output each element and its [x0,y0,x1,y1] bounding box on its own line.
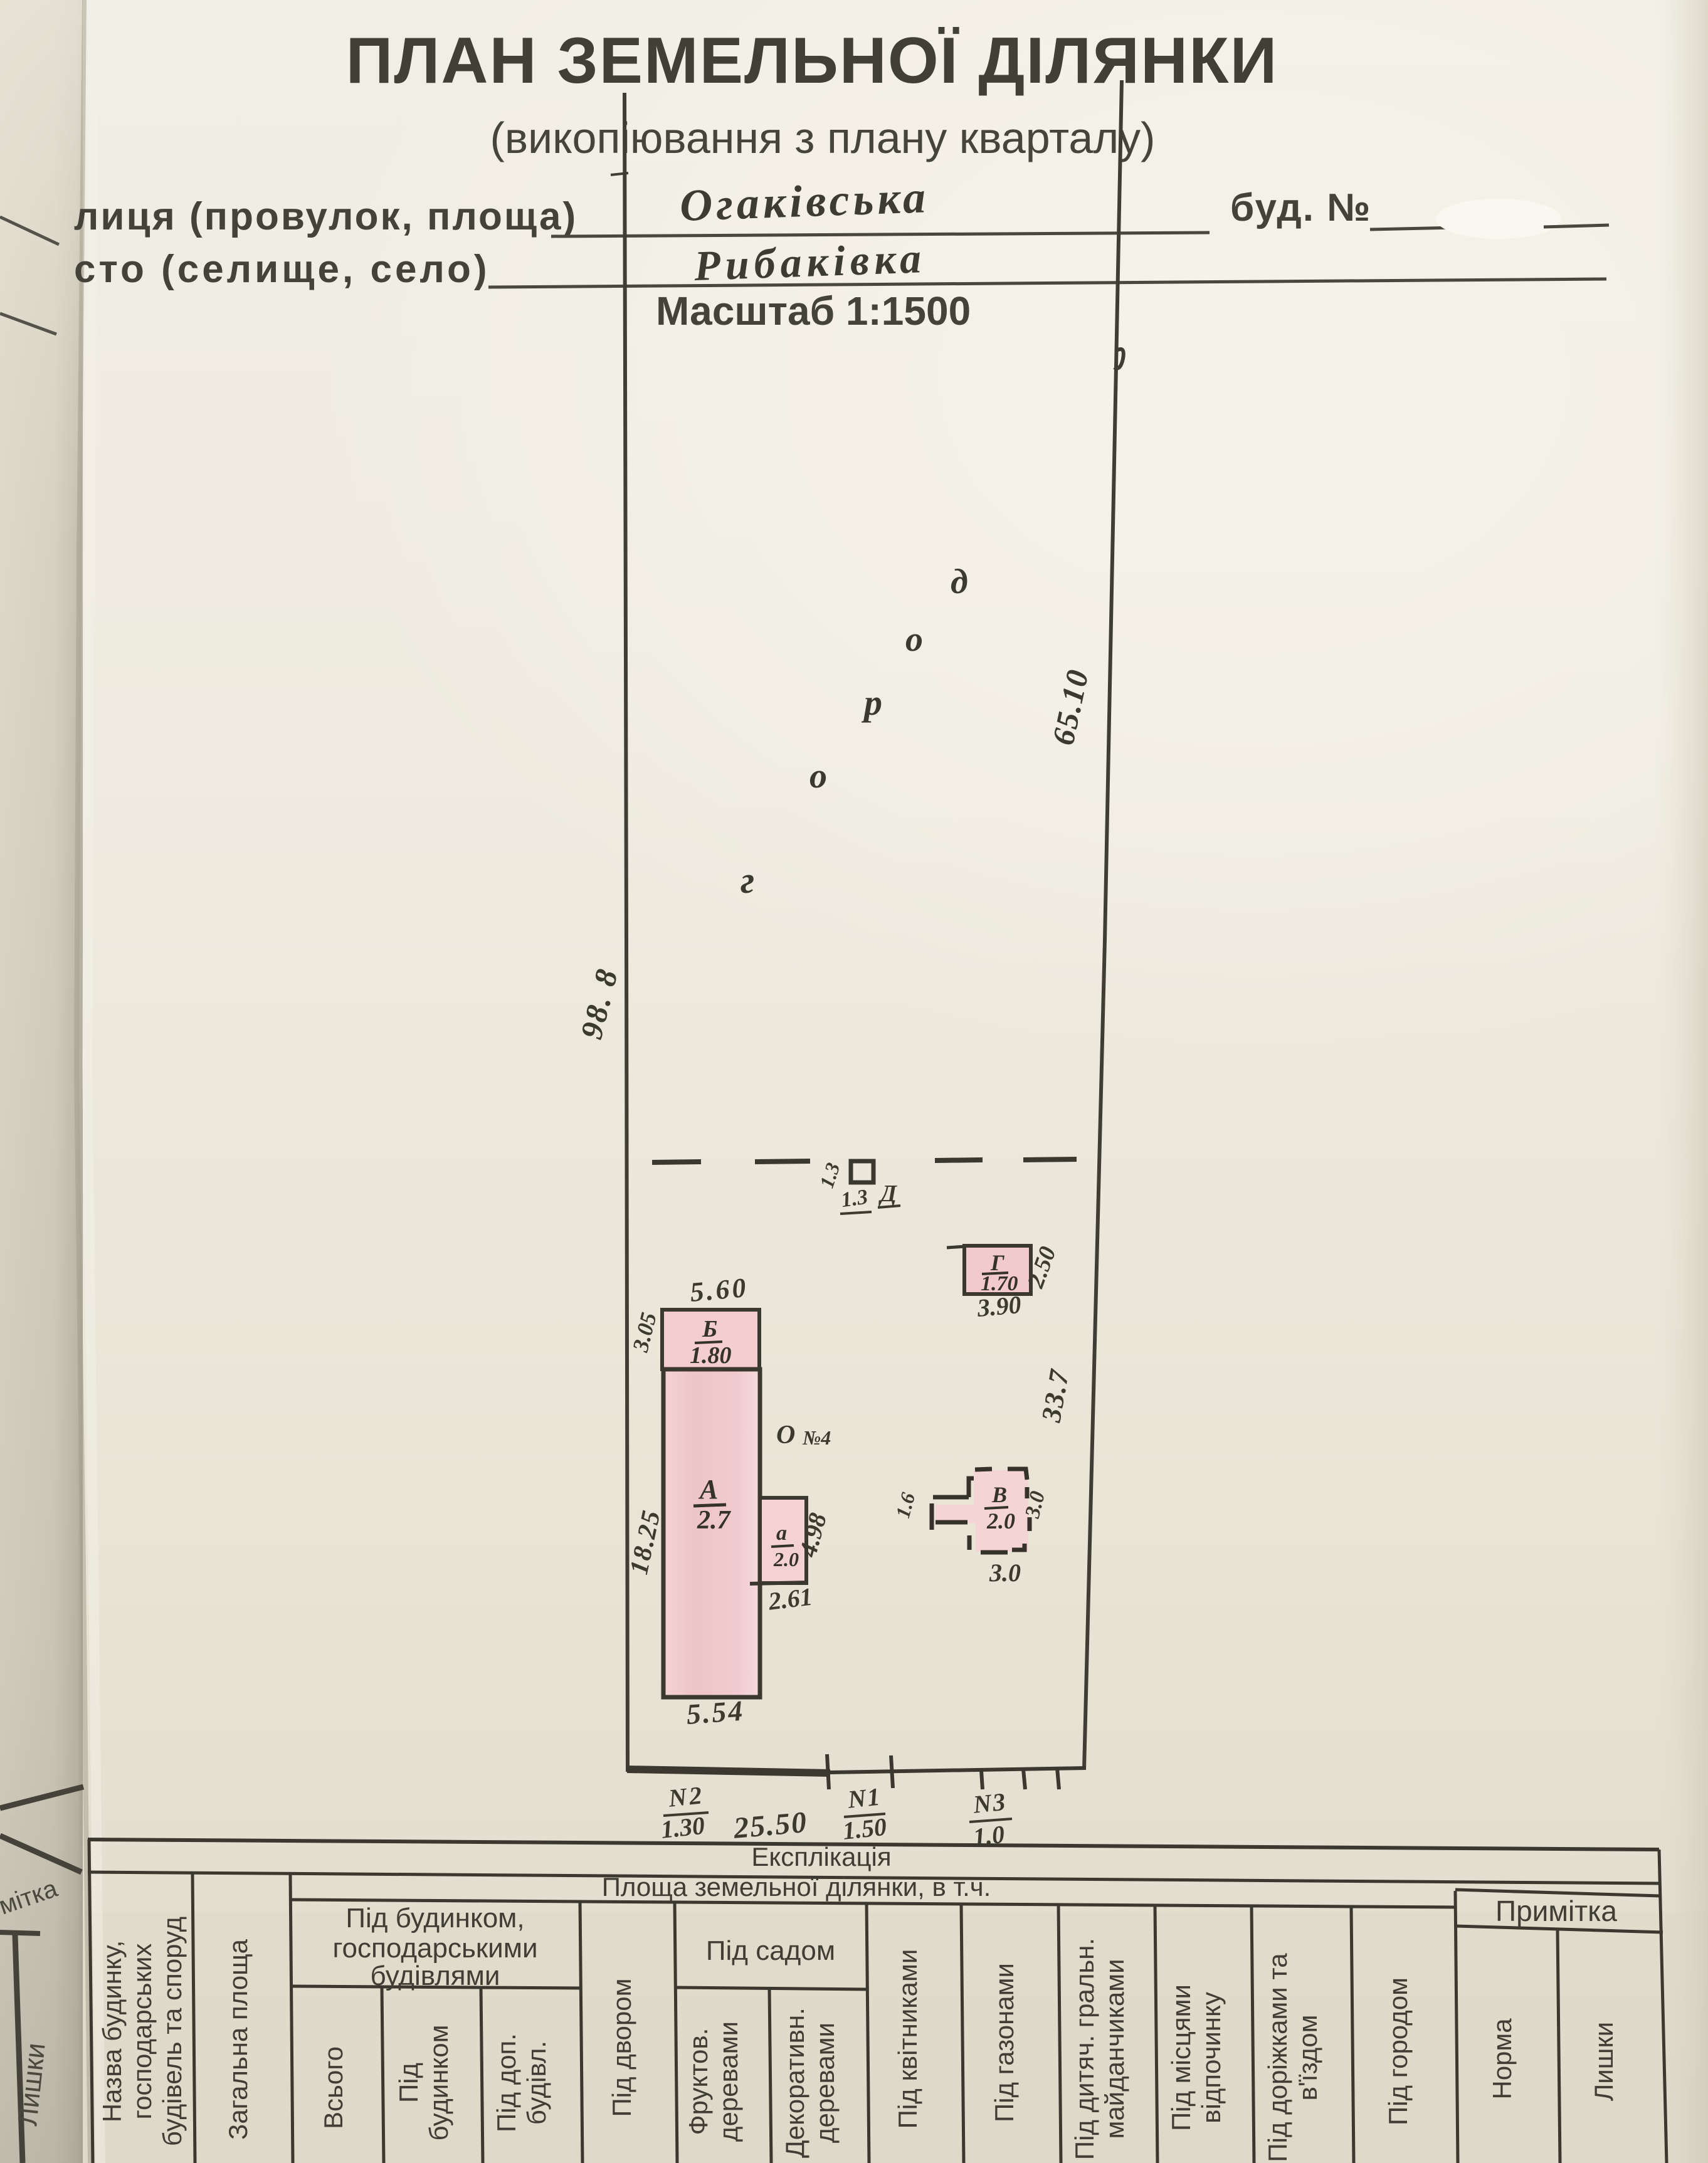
svg-text:Лишки: Лишки [1589,2022,1618,2102]
svg-text:сто (селище, село): сто (селище, село) [74,248,490,291]
svg-text:д: д [951,562,968,601]
svg-text:Декоративн.: Декоративн. [780,2008,809,2158]
svg-text:г: г [741,860,754,901]
svg-text:25.50: 25.50 [732,1806,809,1845]
svg-text:будівл.: будівл. [522,2041,551,2125]
svg-text:1.80: 1.80 [690,1342,732,1369]
svg-text:ПЛАН ЗЕМЕЛЬНОЇ ДІЛЯНКИ: ПЛАН ЗЕМЕЛЬНОЇ ДІЛЯНКИ [346,24,1278,97]
svg-text:2.61: 2.61 [766,1582,814,1616]
svg-text:Експлікація: Експлікація [751,1842,891,1871]
svg-text:N2: N2 [667,1781,705,1813]
svg-text:деревами: деревами [810,2023,840,2143]
svg-text:господарськими: господарськими [332,1933,537,1964]
svg-text:1.3: 1.3 [840,1186,869,1213]
svg-text:буд. №: буд. № [1230,186,1371,229]
svg-text:(викопіювання з плану кварталу: (викопіювання з плану кварталу) [490,113,1156,162]
svg-text:№4: №4 [802,1426,831,1449]
svg-text:господарських: господарських [127,1944,157,2120]
svg-text:Під: Під [394,2063,423,2103]
svg-text:лиця (провулок, площа): лиця (провулок, площа) [74,195,577,238]
svg-text:Під газонами: Під газонами [989,1963,1019,2122]
svg-text:3.0: 3.0 [989,1559,1021,1587]
svg-text:в'їздом: в'їздом [1293,2014,1322,2100]
svg-text:Під двором: Під двором [607,1979,636,2117]
svg-text:N1: N1 [846,1782,882,1813]
svg-text:Під дитяч. гральн.: Під дитяч. гральн. [1070,1938,1099,2160]
svg-text:будинком: будинком [424,2025,453,2141]
svg-text:деревами: деревами [714,2021,743,2142]
svg-text:N3: N3 [971,1787,1008,1818]
svg-text:Фруктов.: Фруктов. [683,2028,713,2135]
svg-text:2.0: 2.0 [986,1508,1015,1534]
svg-text:Під доп.: Під доп. [492,2033,521,2132]
svg-text:Рибаківка: Рибаківка [693,234,927,290]
svg-text:5.60: 5.60 [688,1272,749,1308]
svg-text:А: А [698,1474,718,1505]
svg-text:майданчиками: майданчиками [1100,1959,1129,2139]
svg-text:1.50: 1.50 [841,1813,888,1845]
svg-text:Б: Б [702,1316,717,1342]
svg-text:Під доріжками та: Під доріжками та [1263,1953,1292,2162]
svg-text:Загальна площа: Загальна площа [223,1939,253,2140]
svg-text:р: р [861,682,882,723]
svg-text:Норма: Норма [1487,2018,1517,2100]
svg-text:Під будинком,: Під будинком, [345,1903,524,1934]
svg-text:3.90: 3.90 [976,1290,1023,1322]
svg-text:2.7: 2.7 [697,1506,732,1535]
svg-text:а: а [776,1522,787,1545]
svg-text:о: о [809,757,827,796]
svg-text:Г: Г [990,1250,1004,1275]
svg-text:відпочинку: відпочинку [1196,1992,1226,2124]
svg-text:Під городом: Під городом [1383,1977,1413,2125]
svg-text:5.54: 5.54 [685,1695,746,1730]
svg-text:будівлями: будівлями [371,1960,500,1991]
svg-text:Під квітниками: Під квітниками [893,1949,922,2129]
svg-text:Примітка: Примітка [1495,1895,1617,1927]
svg-text:Масштаб 1:1500: Масштаб 1:1500 [656,288,971,334]
svg-text:Під садом: Під садом [706,1935,835,1966]
svg-text:Огаківська: Огаківська [679,172,930,231]
svg-text:Д: Д [878,1181,898,1207]
svg-text:О: О [776,1421,795,1450]
svg-text:В: В [991,1482,1007,1507]
svg-text:1.30: 1.30 [660,1811,706,1844]
svg-text:Під місцями: Під місцями [1166,1984,1196,2131]
svg-text:будівель та споруд: будівель та споруд [157,1917,187,2146]
svg-text:о: о [905,620,923,659]
svg-text:Назва будинку,: Назва будинку, [97,1940,127,2123]
svg-text:Площа земельної ділянки, в т.ч: Площа земельної ділянки, в т.ч. [602,1872,991,1902]
svg-text:Всього: Всього [319,2046,348,2129]
